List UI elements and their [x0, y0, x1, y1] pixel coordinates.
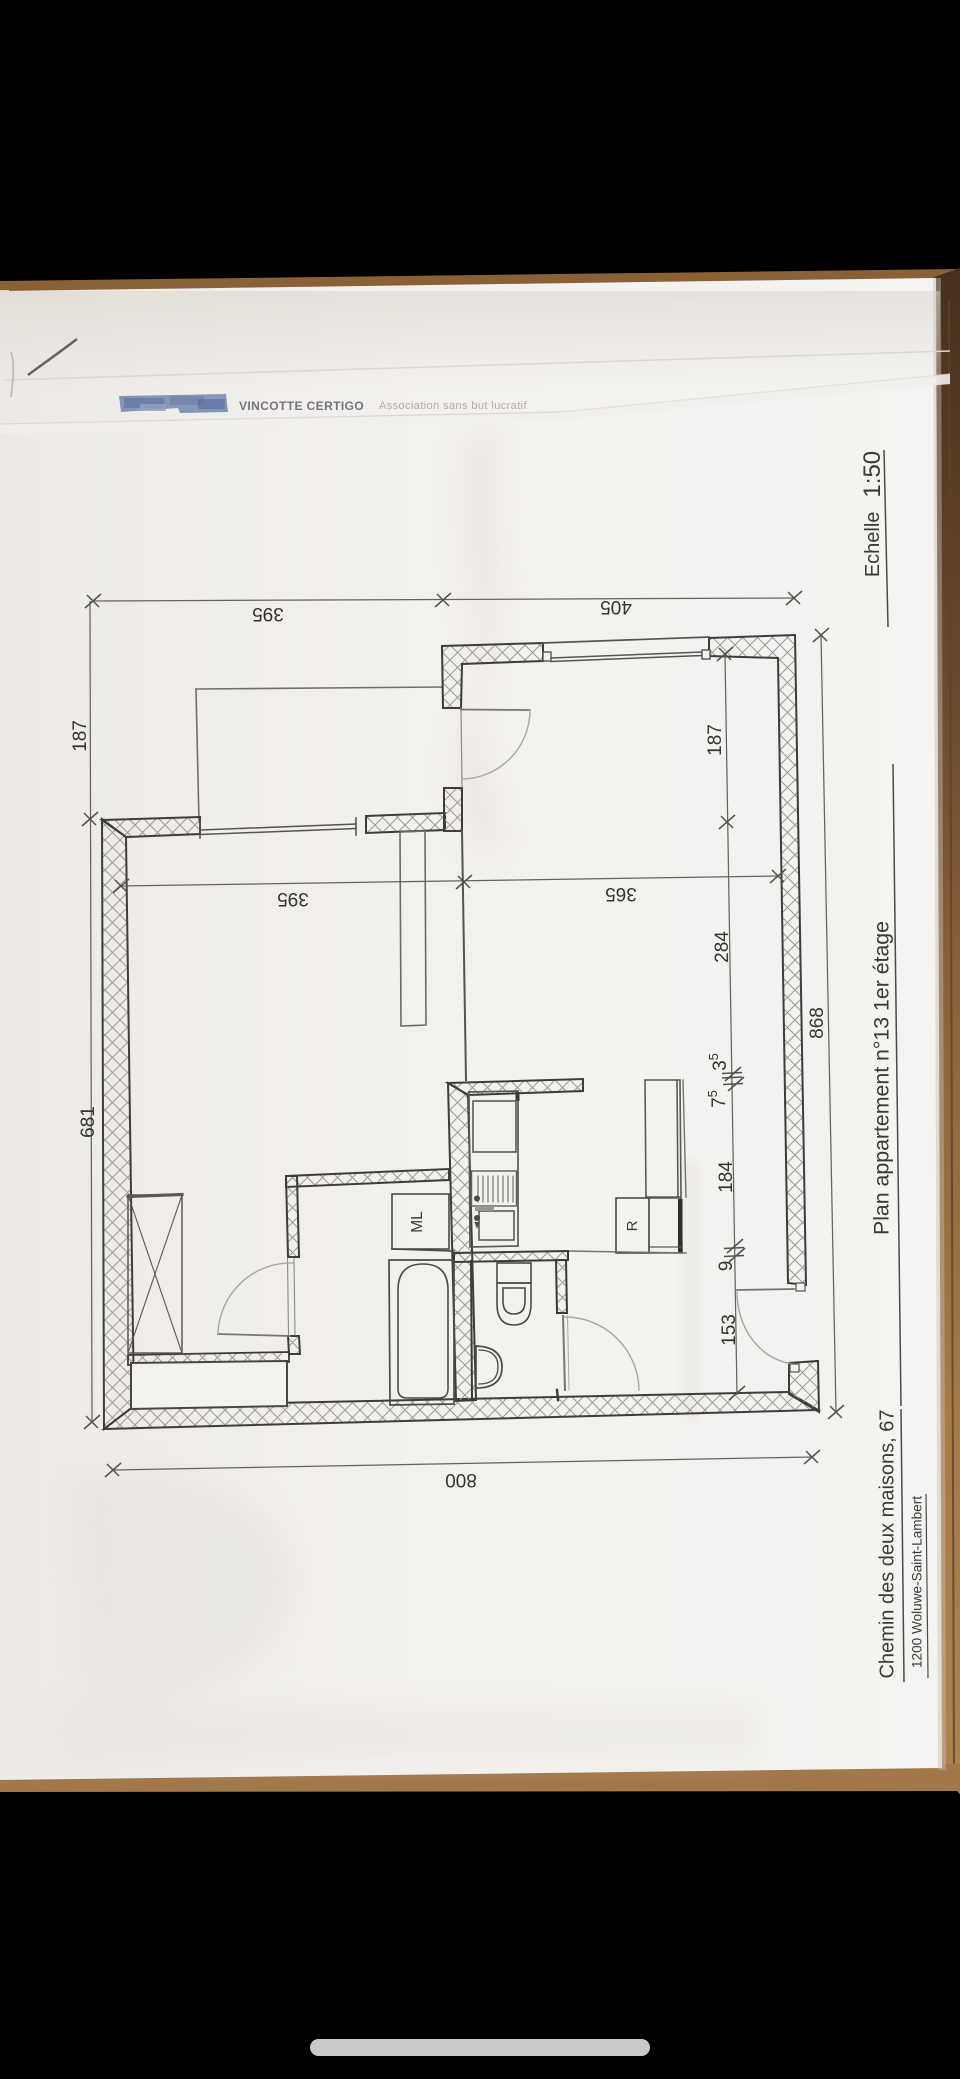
svg-text:800: 800 — [445, 1469, 477, 1490]
svg-text:ML: ML — [409, 1211, 426, 1233]
svg-text:868: 868 — [807, 1007, 828, 1039]
svg-text:395: 395 — [277, 888, 309, 909]
svg-text:1200 Woluwe-Saint-Lambert: 1200 Woluwe-Saint-Lambert — [910, 1496, 925, 1668]
svg-text:184: 184 — [716, 1161, 737, 1193]
svg-text:284: 284 — [712, 931, 733, 963]
svg-text:405: 405 — [600, 596, 632, 617]
svg-text:187: 187 — [70, 720, 91, 752]
svg-text:R: R — [624, 1220, 641, 1231]
svg-text:395: 395 — [252, 603, 284, 624]
svg-text:Echelle1:50: Echelle1:50 — [859, 451, 886, 577]
svg-text:Plan appartement n°13 1er étag: Plan appartement n°13 1er étage — [870, 921, 894, 1235]
svg-text:187: 187 — [705, 724, 726, 756]
svg-text:Association sans but lucratif: Association sans but lucratif — [379, 400, 527, 412]
svg-text:365: 365 — [605, 883, 637, 904]
svg-text:9: 9 — [716, 1261, 737, 1272]
svg-text:681: 681 — [78, 1106, 99, 1138]
svg-text:VINCOTTE CERTIGO: VINCOTTE CERTIGO — [239, 399, 364, 413]
svg-text:Chemin des deux maisons, 67: Chemin des deux maisons, 67 — [876, 1409, 898, 1678]
svg-text:153: 153 — [719, 1314, 740, 1346]
